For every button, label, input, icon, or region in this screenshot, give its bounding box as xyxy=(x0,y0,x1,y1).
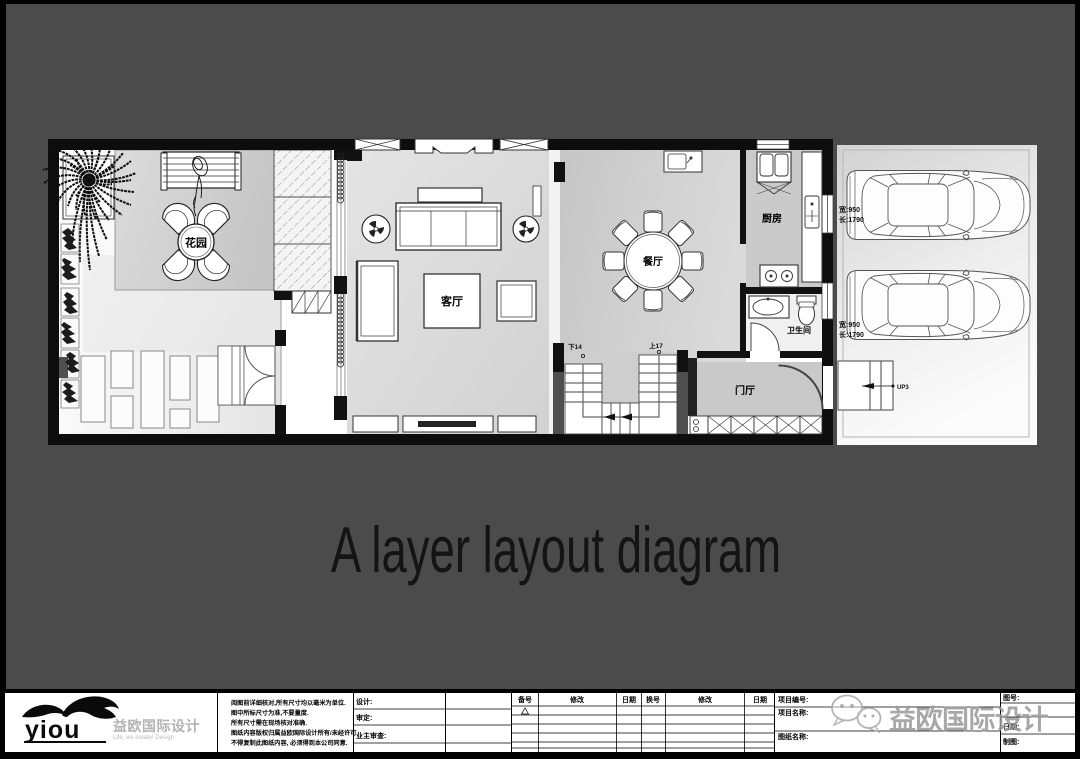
svg-text:客厅: 客厅 xyxy=(440,294,463,308)
svg-text:厨房: 厨房 xyxy=(762,212,782,225)
svg-text:卫生间: 卫生间 xyxy=(787,325,811,335)
svg-text:长:1790: 长:1790 xyxy=(839,215,864,224)
svg-text:花园: 花园 xyxy=(185,236,207,250)
svg-text:门厅: 门厅 xyxy=(735,384,755,397)
svg-text:上17: 上17 xyxy=(649,341,663,350)
svg-text:UP3: UP3 xyxy=(897,385,909,391)
svg-text:宽:950: 宽:950 xyxy=(838,320,860,329)
svg-text:餐厅: 餐厅 xyxy=(642,255,663,268)
svg-text:长:1790: 长:1790 xyxy=(839,330,864,339)
svg-text:宽:950: 宽:950 xyxy=(838,205,860,214)
svg-text:下14: 下14 xyxy=(568,343,582,351)
